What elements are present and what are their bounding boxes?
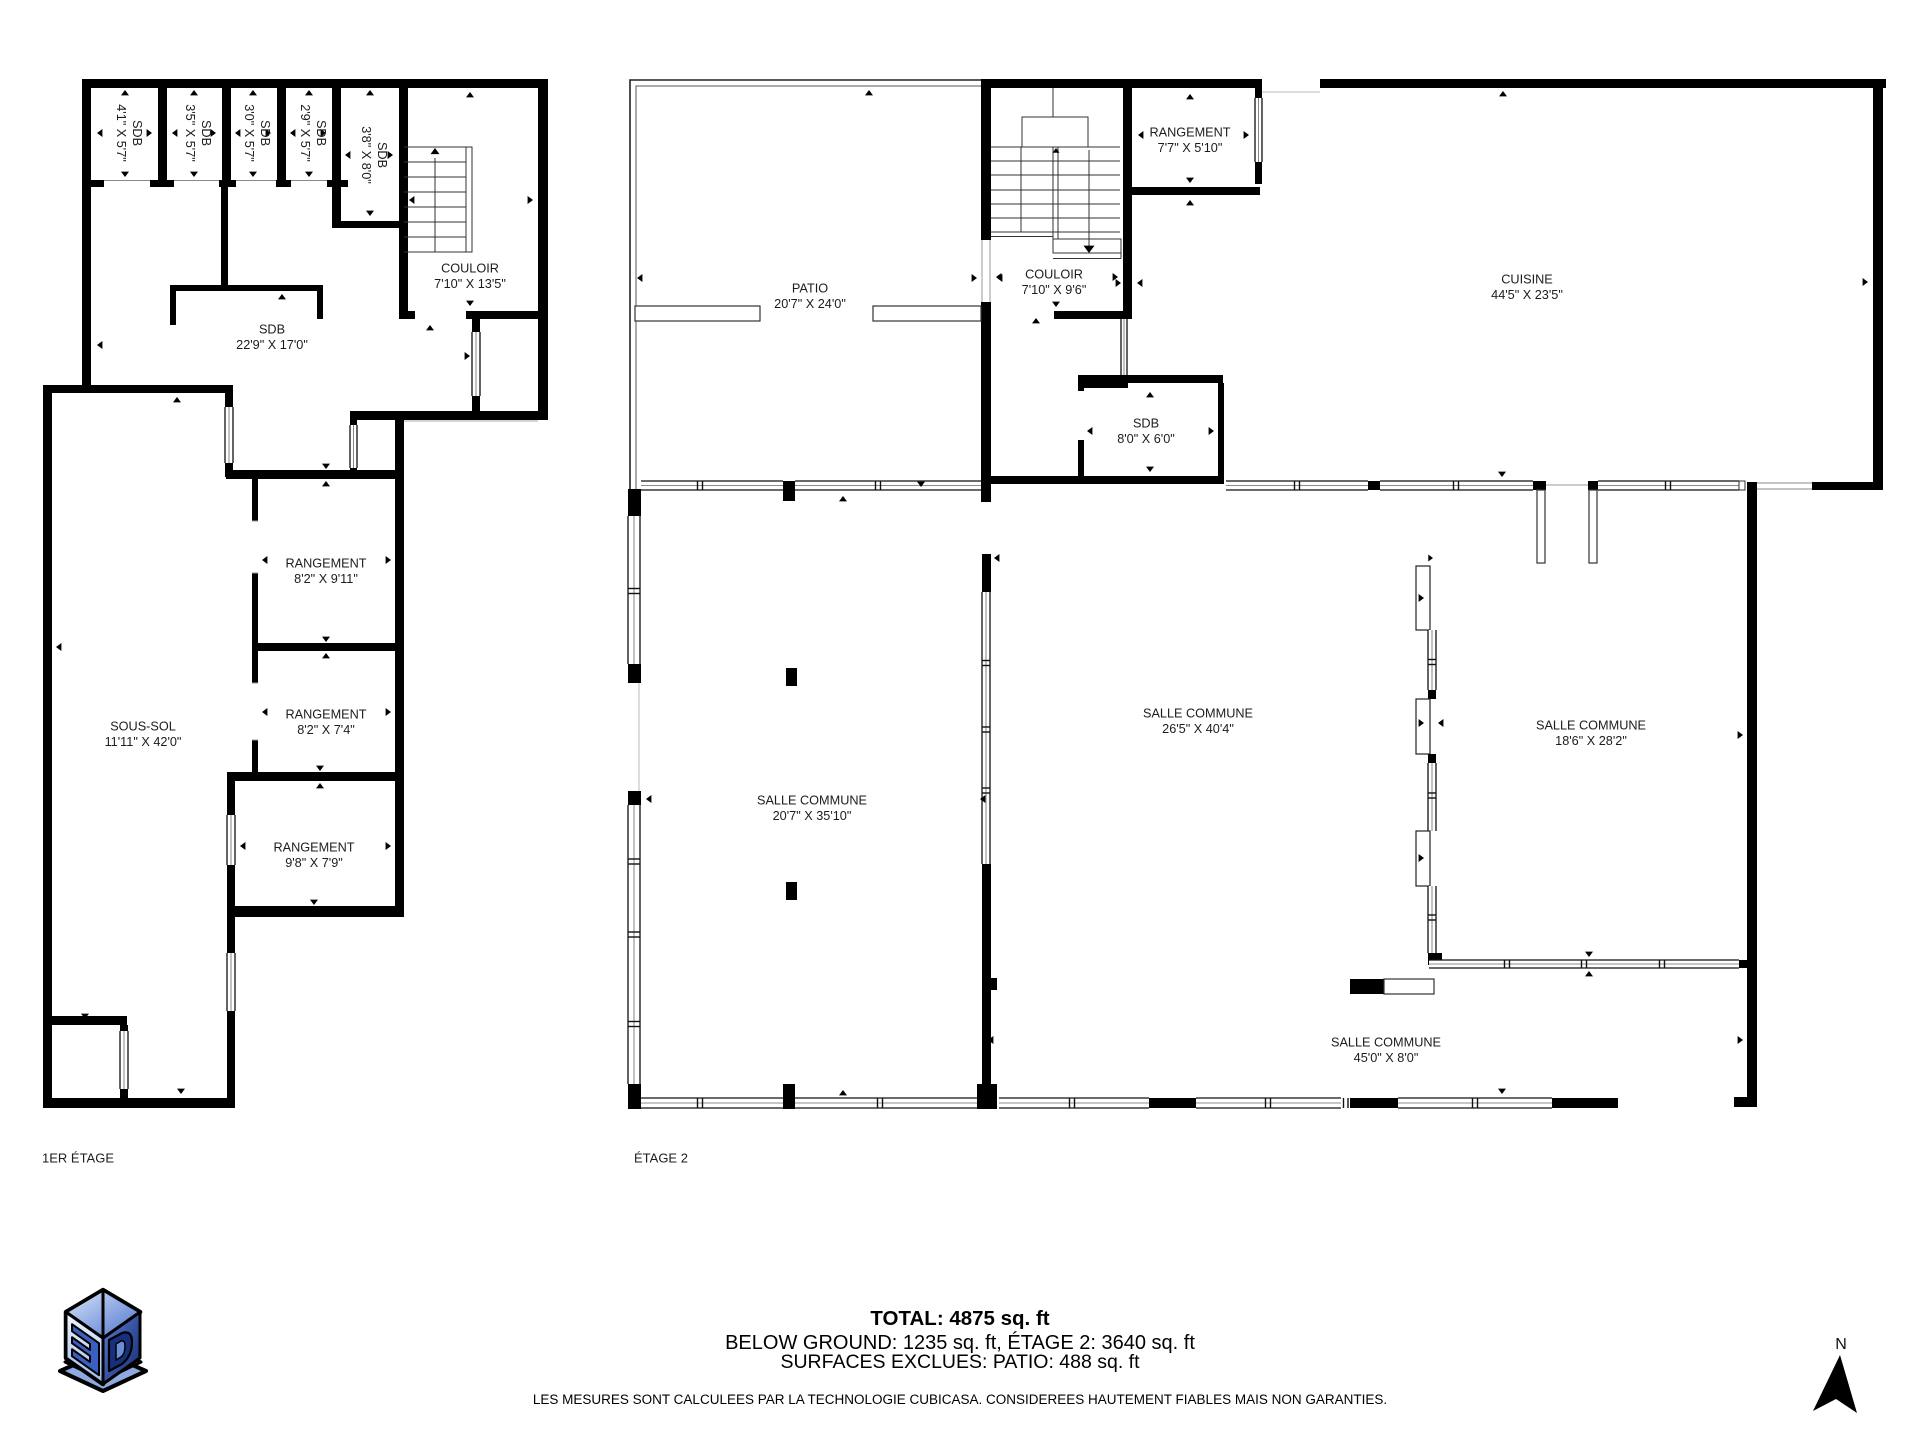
svg-text:SDB: SDB [199, 120, 213, 146]
svg-text:LES MESURES SONT CALCULEES PAR: LES MESURES SONT CALCULEES PAR LA TECHNO… [533, 1392, 1387, 1407]
svg-text:7'7" X 5'10": 7'7" X 5'10" [1158, 141, 1223, 155]
svg-text:18'6" X 28'2": 18'6" X 28'2" [1555, 734, 1627, 748]
svg-text:3'5" X 5'7": 3'5" X 5'7" [183, 104, 197, 162]
svg-text:TOTAL: 4875 sq. ft: TOTAL: 4875 sq. ft [870, 1307, 1049, 1330]
svg-text:8'2" X 9'11": 8'2" X 9'11" [294, 572, 358, 586]
svg-text:SALLE COMMUNE: SALLE COMMUNE [757, 793, 867, 807]
svg-text:RANGEMENT: RANGEMENT [285, 556, 366, 570]
svg-text:SDB: SDB [1133, 416, 1159, 430]
svg-text:ÉTAGE 2: ÉTAGE 2 [634, 1151, 688, 1166]
svg-text:SDB: SDB [375, 142, 389, 168]
svg-text:SALLE COMMUNE: SALLE COMMUNE [1331, 1035, 1441, 1049]
svg-text:SDB: SDB [130, 120, 144, 146]
svg-text:SALLE COMMUNE: SALLE COMMUNE [1143, 706, 1253, 720]
svg-text:8'2" X 7'4": 8'2" X 7'4" [297, 723, 355, 737]
svg-text:SDB: SDB [259, 322, 285, 336]
svg-text:8'0" X 6'0": 8'0" X 6'0" [1117, 432, 1175, 446]
svg-text:CUISINE: CUISINE [1501, 272, 1552, 286]
svg-text:3'0" X 5'7": 3'0" X 5'7" [242, 104, 256, 162]
svg-text:45'0" X 8'0": 45'0" X 8'0" [1354, 1051, 1419, 1065]
svg-text:SDB: SDB [258, 120, 272, 146]
svg-text:RANGEMENT: RANGEMENT [285, 707, 366, 721]
svg-text:11'11" X 42'0": 11'11" X 42'0" [105, 735, 182, 749]
svg-text:2'9" X 5'7": 2'9" X 5'7" [298, 104, 312, 162]
svg-text:20'7" X 24'0": 20'7" X 24'0" [774, 297, 846, 311]
svg-text:22'9" X 17'0": 22'9" X 17'0" [236, 338, 308, 352]
svg-text:SDB: SDB [314, 120, 328, 146]
svg-text:7'10" X 13'5": 7'10" X 13'5" [434, 277, 506, 291]
svg-text:26'5" X 40'4": 26'5" X 40'4" [1162, 722, 1234, 736]
svg-text:44'5" X 23'5": 44'5" X 23'5" [1491, 288, 1563, 302]
svg-text:PATIO: PATIO [792, 281, 828, 295]
svg-text:7'10" X 9'6": 7'10" X 9'6" [1022, 283, 1087, 297]
svg-text:SALLE COMMUNE: SALLE COMMUNE [1536, 718, 1646, 732]
svg-text:1ER ÉTAGE: 1ER ÉTAGE [42, 1151, 114, 1166]
svg-text:9'8" X 7'9": 9'8" X 7'9" [285, 856, 343, 870]
svg-text:COULOIR: COULOIR [441, 261, 499, 275]
svg-text:RANGEMENT: RANGEMENT [273, 840, 354, 854]
svg-text:3'8" X 8'0": 3'8" X 8'0" [359, 126, 373, 184]
svg-text:SOUS-SOL: SOUS-SOL [110, 719, 176, 733]
svg-text:COULOIR: COULOIR [1025, 267, 1083, 281]
svg-text:SURFACES EXCLUES: PATIO: 488 s: SURFACES EXCLUES: PATIO: 488 sq. ft [780, 1351, 1140, 1373]
svg-text:20'7" X 35'10": 20'7" X 35'10" [773, 809, 852, 823]
svg-text:RANGEMENT: RANGEMENT [1149, 125, 1230, 139]
svg-text:N: N [1835, 1336, 1847, 1353]
svg-text:4'1" X 5'7": 4'1" X 5'7" [114, 104, 128, 162]
